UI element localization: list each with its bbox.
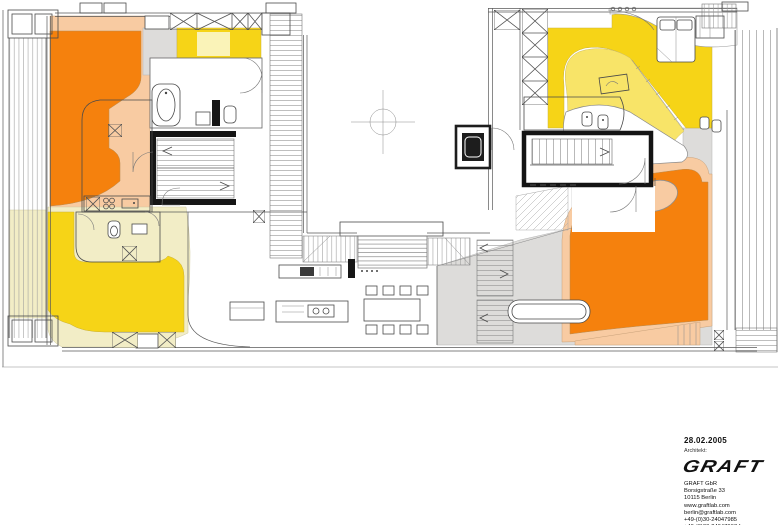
floor-plan (0, 0, 780, 525)
phone: +49-(0)30-24047985 (684, 517, 780, 524)
entry-step (136, 334, 158, 348)
basin (700, 117, 709, 129)
terrace-left (9, 38, 46, 338)
zone-pale-inset-top (197, 32, 230, 56)
website: www.graftlab.com (684, 503, 780, 510)
step-dots (361, 270, 378, 272)
appliance (300, 267, 314, 276)
axis-marker-icon (351, 90, 415, 154)
email: berlin@graftlab.com (684, 510, 780, 517)
sink (132, 224, 147, 234)
counter (230, 302, 264, 320)
terrace-right (735, 30, 777, 330)
title-block: 28.02.2005 Architekt: GRAFT GRAFT GbR Bo… (684, 436, 780, 525)
garden-steps (358, 236, 427, 268)
corridor-right (572, 186, 655, 232)
toilet (598, 115, 608, 129)
toilet (108, 221, 120, 238)
step-flank-left (303, 236, 357, 262)
bed (657, 17, 695, 62)
toilet (582, 112, 592, 126)
terrace-corner-deck (736, 328, 777, 352)
basin (712, 120, 721, 132)
drawing-sheet: 28.02.2005 Architekt: GRAFT GRAFT GbR Bo… (0, 0, 780, 525)
graft-logo: GRAFT (681, 457, 780, 477)
sheet-date: 28.02.2005 (684, 436, 780, 445)
kitchen-island (276, 301, 348, 322)
dining-table (364, 286, 428, 334)
gallery-ladder-band (270, 14, 302, 258)
upper-step (340, 222, 443, 236)
stair-left-wing (150, 131, 236, 205)
stair-right-wing (524, 133, 651, 185)
city: 10115 Berlin (684, 495, 780, 502)
living-area (230, 259, 428, 334)
hatch-wedge (516, 186, 568, 230)
architect-label: Architekt: (684, 448, 780, 454)
firm-name: GRAFT GbR (684, 481, 780, 488)
ramp-bench (508, 300, 590, 323)
elevator (456, 126, 514, 168)
street: Borsigstraße 33 (684, 488, 780, 495)
